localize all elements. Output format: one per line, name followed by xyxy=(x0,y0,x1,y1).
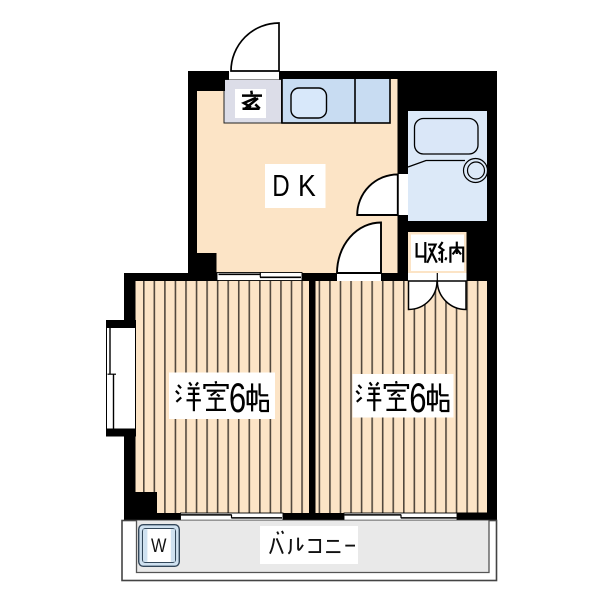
svg-text:W: W xyxy=(151,535,166,557)
svg-text:K: K xyxy=(298,169,316,203)
svg-text:6: 6 xyxy=(409,375,426,422)
svg-text:D: D xyxy=(272,168,289,203)
svg-text:6: 6 xyxy=(229,375,246,422)
